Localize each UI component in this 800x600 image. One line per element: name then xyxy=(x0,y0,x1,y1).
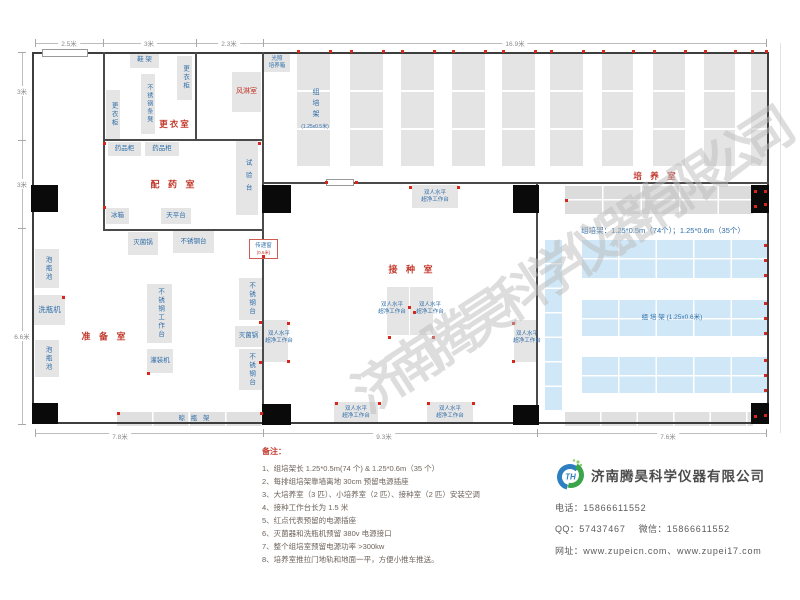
room-label-prep: 准 备 室 xyxy=(81,330,128,343)
rack-label-text: 组培架 xyxy=(310,88,320,121)
power-outlet-dot xyxy=(382,50,385,53)
power-outlet-dot xyxy=(452,50,455,53)
building-outer-wall xyxy=(32,52,769,424)
power-outlet-dot xyxy=(259,361,262,364)
power-outlet-dot xyxy=(413,311,416,314)
dim-top-4: 16.9米 xyxy=(502,38,527,48)
power-outlet-dot xyxy=(103,206,106,209)
note-item: 4、接种工作台长为 1.5 米 xyxy=(262,501,552,514)
power-outlet-dot xyxy=(260,412,263,415)
column-block xyxy=(262,185,291,213)
rack-row-label: 组 培 架 (1.25x0.6米) xyxy=(642,314,703,322)
dim-tick xyxy=(766,429,767,437)
clean-bench-label: 双人水平超净工作台 xyxy=(416,302,444,316)
power-outlet-dot xyxy=(427,402,430,405)
power-outlet-dot xyxy=(764,190,767,193)
svg-text:TH: TH xyxy=(565,473,576,482)
power-outlet-dot xyxy=(764,274,767,277)
room-label-culture: 培 养 室 xyxy=(633,170,678,182)
room-label-changing: 更衣室 xyxy=(159,118,191,130)
column-block xyxy=(513,405,539,425)
websites-value: www.zupeicn.com、www.zupei17.com xyxy=(583,546,761,556)
note-item: 7、整个组培室预留电源功率 >300kw xyxy=(262,540,552,553)
power-outlet-dot xyxy=(502,50,505,53)
dim-tick xyxy=(18,424,26,425)
power-outlet-dot xyxy=(734,50,737,53)
rack-size-text: (1.25x0.5米) xyxy=(301,123,329,130)
power-outlet-dot xyxy=(754,205,757,208)
dim-tick xyxy=(196,39,197,47)
dim-left-1: 3米 xyxy=(14,86,30,96)
notes-title: 备注： xyxy=(262,446,552,457)
power-outlet-dot xyxy=(329,50,332,53)
company-panel: TH 济南腾昊科学仪器有限公司 电话：15866611552 QQ：574374… xyxy=(555,458,785,557)
dim-top-2: 3米 xyxy=(141,38,157,48)
wall-dispensing-top xyxy=(103,139,264,141)
power-outlet-dot xyxy=(764,317,767,320)
dim-left-3: 6.6米 xyxy=(11,331,33,341)
power-outlet-dot xyxy=(472,402,475,405)
column-block xyxy=(31,185,58,212)
phone-label: 电话： xyxy=(555,503,583,513)
company-logo-icon: TH xyxy=(555,458,587,492)
power-outlet-dot xyxy=(401,50,404,53)
sliding-door-marker-inoculation xyxy=(326,179,354,186)
company-web-line: 网址：www.zupeicn.com、www.zupei17.com xyxy=(555,544,785,557)
power-outlet-dot xyxy=(62,296,65,299)
power-outlet-dot xyxy=(325,181,328,184)
dim-bottom-1: 7.8米 xyxy=(109,431,131,441)
qq-value: 57437467 xyxy=(579,524,625,534)
power-outlet-dot xyxy=(484,50,487,53)
column-block xyxy=(262,404,291,425)
power-outlet-dot xyxy=(764,244,767,247)
column-block xyxy=(32,403,58,424)
phone-value: 15866611552 xyxy=(583,503,646,513)
rack-summary: 组培架：1.25*0.5m（74个）；1.25*0.6m（35个） xyxy=(581,226,745,236)
power-outlet-dot xyxy=(704,50,707,53)
power-outlet-dot xyxy=(602,50,605,53)
power-outlet-dot xyxy=(764,389,767,392)
note-item: 2、每排组培架靠墙离地 30cm 预留电源插座 xyxy=(262,475,552,488)
power-outlet-dot xyxy=(259,321,262,324)
power-outlet-dot xyxy=(754,190,757,193)
dim-tick xyxy=(18,140,26,141)
notes-panel: 备注： 1、组培架长 1.25*0.5m(74 个) & 1.25*0.6m（3… xyxy=(262,446,552,566)
sliding-door-marker-top xyxy=(42,49,88,57)
column-block xyxy=(513,185,539,213)
power-outlet-dot xyxy=(262,255,265,258)
room-label-dispensing: 配 药 室 xyxy=(150,178,197,191)
power-outlet-dot xyxy=(764,203,767,206)
clean-bench-label: 双人水平超净工作台 xyxy=(513,331,541,345)
dim-tick xyxy=(103,39,104,47)
note-item: 6、灭菌器和洗瓶机预留 380v 电源接口 xyxy=(262,527,552,540)
power-outlet-dot xyxy=(764,374,767,377)
qq-label: QQ： xyxy=(555,524,579,534)
company-phone-line: 电话：15866611552 xyxy=(555,501,785,514)
power-outlet-dot xyxy=(409,186,412,189)
wechat-value: 15866611552 xyxy=(667,524,730,534)
drying-rack-label: 晾 瓶 架 xyxy=(178,415,211,423)
dim-tick xyxy=(766,39,767,47)
web-label: 网址： xyxy=(555,546,583,556)
power-outlet-dot xyxy=(565,199,568,202)
power-outlet-dot xyxy=(582,50,585,53)
dim-tick xyxy=(263,39,264,47)
power-outlet-dot xyxy=(335,402,338,405)
power-outlet-dot xyxy=(433,50,436,53)
power-outlet-dot xyxy=(432,336,435,339)
power-outlet-dot xyxy=(653,50,656,53)
dim-top-3: 2.3米 xyxy=(218,38,240,48)
pass-window-label: 传递窗 xyxy=(255,243,272,250)
power-outlet-dot xyxy=(684,50,687,53)
rack-label-small: 组培架 (1.25x0.5米) xyxy=(297,88,333,130)
dim-top-1: 2.5米 xyxy=(58,38,80,48)
power-outlet-dot xyxy=(408,306,411,309)
wall-prep-right xyxy=(262,52,264,424)
dim-tick xyxy=(35,39,36,47)
wall-changing-airshower xyxy=(195,52,197,140)
floorplan-canvas: 2.5米 3米 2.3米 16.9米 3米 3米 6.6米 7.8米 9.3米 … xyxy=(0,0,800,600)
dim-tick xyxy=(18,52,26,53)
power-outlet-dot xyxy=(550,50,553,53)
power-outlet-dot xyxy=(355,181,358,184)
power-outlet-dot xyxy=(534,50,537,53)
clean-bench-label: 双人水平超净工作台 xyxy=(378,302,406,316)
note-item: 8、培养室推拉门地轨和地面一平，方便小推车推送。 xyxy=(262,553,552,566)
note-item: 3、大培养室（3 匹）、小培养室（2 匹）、接种室（2 匹）安装空调 xyxy=(262,488,552,501)
clean-bench-label: 双人水平超净工作台 xyxy=(265,331,293,345)
company-name: 济南腾昊科学仪器有限公司 xyxy=(591,465,765,485)
dim-left-2: 3米 xyxy=(14,179,30,189)
company-qq-line: QQ：57437467 微信：15866611552 xyxy=(555,522,785,535)
room-label-inoculation: 接 种 室 xyxy=(388,263,435,276)
power-outlet-dot xyxy=(764,332,767,335)
wechat-label: 微信： xyxy=(639,524,667,534)
dim-line-left xyxy=(22,52,23,425)
dim-tick xyxy=(35,429,36,437)
power-outlet-dot xyxy=(765,50,768,53)
power-outlet-dot xyxy=(350,50,353,53)
wall-inoculation-right xyxy=(536,183,538,424)
power-outlet-dot xyxy=(378,402,381,405)
dim-tick xyxy=(537,429,538,437)
power-outlet-dot xyxy=(258,142,261,145)
power-outlet-dot xyxy=(764,302,767,305)
dim-bottom-2: 9.3米 xyxy=(373,431,395,441)
dim-tick xyxy=(18,228,26,229)
notes-list: 1、组培架长 1.25*0.5m(74 个) & 1.25*0.6m（35 个）… xyxy=(262,462,552,566)
dim-tick xyxy=(263,429,264,437)
power-outlet-dot xyxy=(457,186,460,189)
dim-bottom-3: 7.6米 xyxy=(657,431,679,441)
power-outlet-dot xyxy=(297,50,300,53)
note-item: 5、红点代表预留的电源插座 xyxy=(262,514,552,527)
wall-dispensing-bottom xyxy=(103,229,264,231)
power-outlet-dot xyxy=(147,372,150,375)
power-outlet-dot xyxy=(388,336,391,339)
power-outlet-dot xyxy=(512,360,515,363)
power-outlet-dot xyxy=(764,259,767,262)
power-outlet-dot xyxy=(512,322,515,325)
note-item: 1、组培架长 1.25*0.5m(74 个) & 1.25*0.6m（35 个） xyxy=(262,462,552,475)
wall-changing-left xyxy=(103,52,105,230)
power-outlet-dot xyxy=(632,50,635,53)
power-outlet-dot xyxy=(287,360,290,363)
power-outlet-dot xyxy=(287,322,290,325)
power-outlet-dot xyxy=(103,142,106,145)
power-outlet-dot xyxy=(754,415,757,418)
power-outlet-dot xyxy=(117,412,120,415)
power-outlet-dot xyxy=(764,359,767,362)
power-outlet-dot xyxy=(764,414,767,417)
power-outlet-dot xyxy=(751,50,754,53)
dim-extension-right xyxy=(780,43,781,433)
